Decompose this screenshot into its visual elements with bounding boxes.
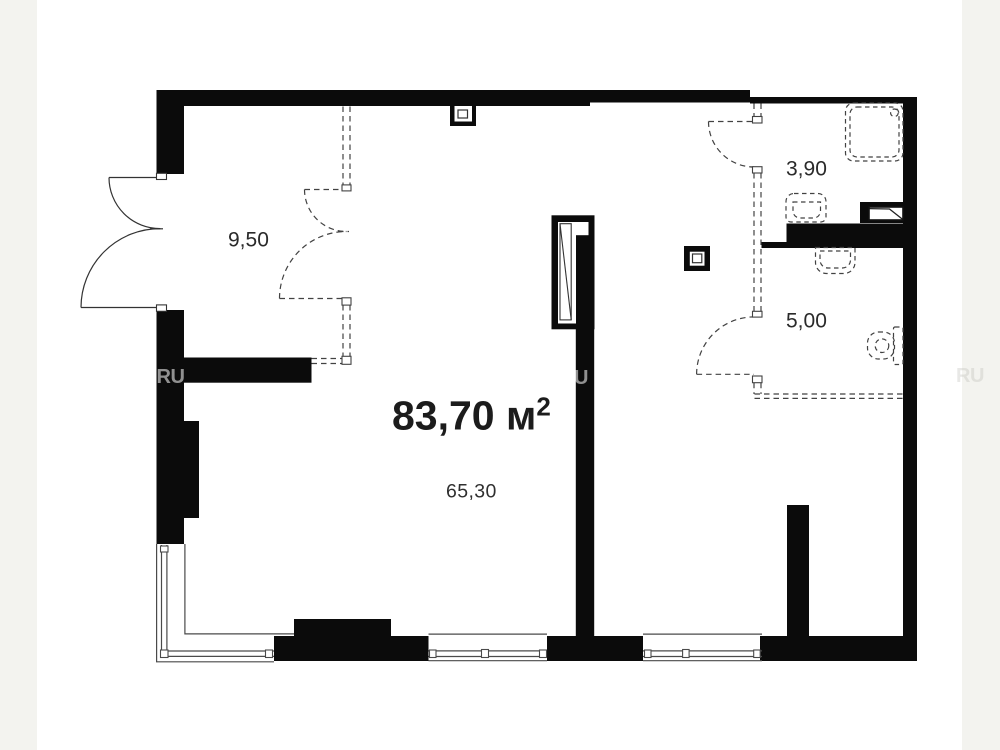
svg-text:9,50: 9,50 [228, 229, 269, 252]
svg-text:RU: RU [956, 365, 984, 387]
svg-text:5,00: 5,00 [786, 310, 827, 333]
svg-text:RU: RU [560, 367, 588, 389]
svg-text:RU: RU [157, 366, 185, 388]
svg-text:83,70 м2: 83,70 м2 [392, 392, 551, 439]
svg-text:3,90: 3,90 [786, 158, 827, 181]
svg-text:65,30: 65,30 [446, 481, 497, 503]
